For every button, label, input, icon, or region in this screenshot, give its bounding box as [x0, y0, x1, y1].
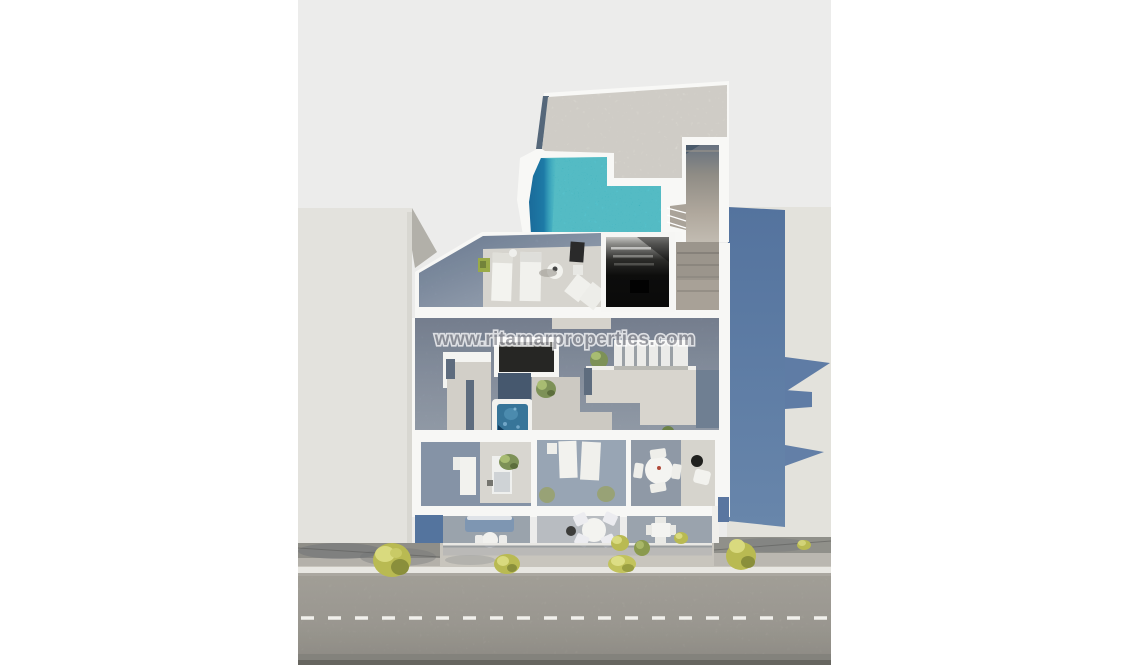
svg-text:www.ritamarproperties.com: www.ritamarproperties.com: [434, 329, 696, 350]
